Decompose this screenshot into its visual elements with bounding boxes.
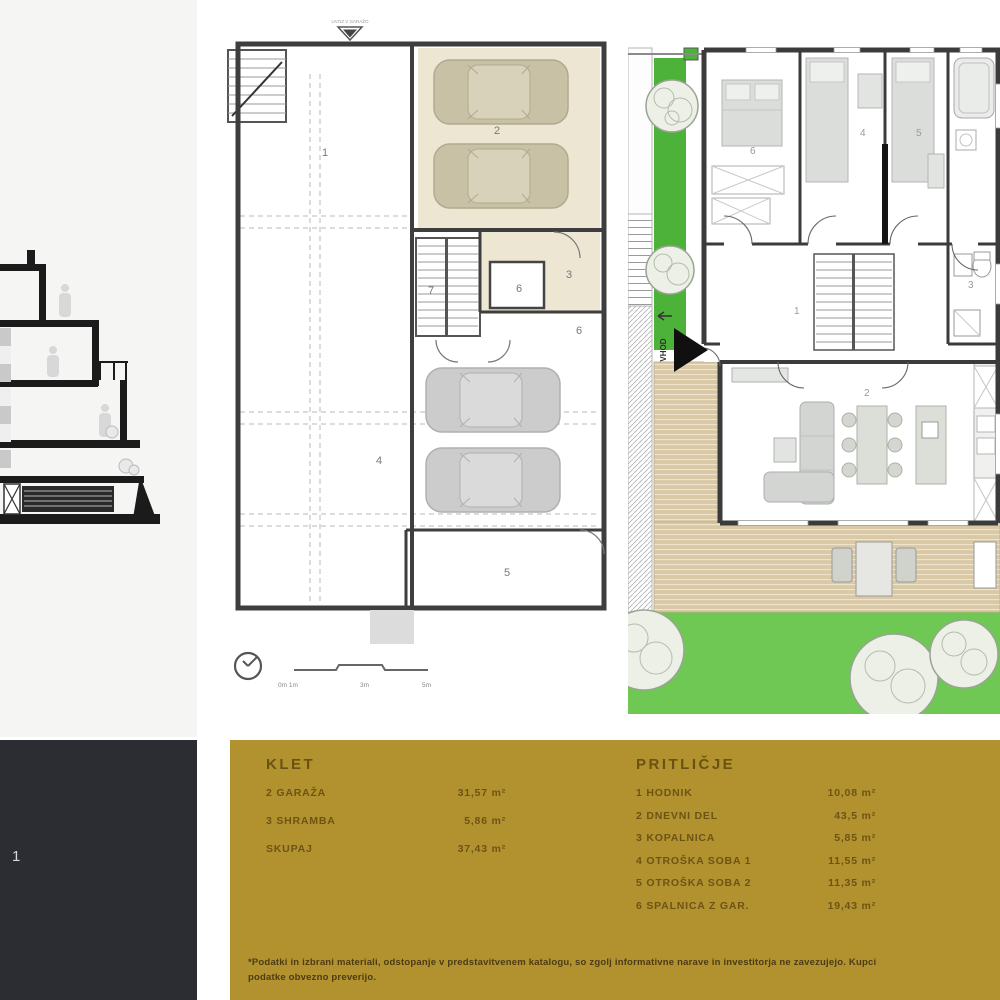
scale-label-3: 3m xyxy=(360,682,369,689)
compass-icon xyxy=(235,653,261,679)
row-value: 5,85 m² xyxy=(786,832,876,844)
row-label: 2 DNEVNI DEL xyxy=(636,810,786,822)
room-label-kid2: 5 xyxy=(916,128,922,139)
row-value: 37,43 m² xyxy=(416,843,506,855)
room-label-kid1: 4 xyxy=(860,128,866,139)
room-label-ramp: 1 xyxy=(322,147,328,159)
row-label: 5 OTROŠKA SOBA 2 xyxy=(636,877,786,889)
car-parking-2 xyxy=(426,448,560,512)
people-silhouettes xyxy=(47,284,111,437)
driveway-marker-label: UVOZ V GARAŽO xyxy=(331,17,369,24)
table-row: 1 HODNIK 10,08 m² xyxy=(636,787,896,799)
room-label-hallway: 1 xyxy=(794,306,800,317)
gravel-path xyxy=(628,306,652,612)
thick-wall-segment xyxy=(882,144,888,244)
table-row: 4 OTROŠKA SOBA 1 11,55 m² xyxy=(636,855,896,867)
room-label-storage: 3 xyxy=(566,269,572,281)
building-cross-section xyxy=(0,228,160,528)
row-label: SKUPAJ xyxy=(266,843,416,855)
row-value: 43,5 m² xyxy=(786,810,876,822)
table-row: 6 SPALNICA Z GAR. 19,43 m² xyxy=(636,900,896,912)
table-row: 3 KOPALNICA 5,85 m² xyxy=(636,832,896,844)
table-row: 2 GARAŽA 31,57 m² xyxy=(266,787,526,799)
row-value: 19,43 m² xyxy=(786,900,876,912)
pritlicje-table: PRITLIČJE 1 HODNIK 10,08 m² 2 DNEVNI DEL… xyxy=(636,756,896,922)
scale-bar: 0m 1m 3m 5m xyxy=(278,665,431,689)
row-value: 11,35 m² xyxy=(786,877,876,889)
scale-label-0: 0m 1m xyxy=(278,682,298,689)
unit-number: 1 xyxy=(12,848,20,865)
room-label-room5: 5 xyxy=(504,567,510,579)
railing xyxy=(96,362,128,380)
tree-icon xyxy=(646,246,694,294)
tree-icon xyxy=(850,634,938,714)
room-label-master: 6 xyxy=(750,146,756,157)
table-row: 2 DNEVNI DEL 43,5 m² xyxy=(636,810,896,822)
row-label: 3 SHRAMBA xyxy=(266,815,416,827)
scale-label-5: 5m xyxy=(422,682,431,689)
tree-icon xyxy=(930,620,998,688)
pritlicje-title: PRITLIČJE xyxy=(636,756,896,773)
table-row: SKUPAJ 37,43 m² xyxy=(266,843,526,855)
row-label: 2 GARAŽA xyxy=(266,787,416,799)
room-label-stairs: 7 xyxy=(428,285,434,297)
car-garage-1 xyxy=(434,60,568,124)
room-label-living: 2 xyxy=(864,388,870,399)
car-parking-1 xyxy=(426,368,560,432)
klet-table: KLET 2 GARAŽA 31,57 m² 3 SHRAMBA 5,86 m²… xyxy=(266,756,526,871)
room-label-room6b: 6 xyxy=(576,325,582,337)
brochure-page: 1 xyxy=(0,0,1000,1000)
room-label-parking: 4 xyxy=(376,455,382,467)
row-value: 5,86 m² xyxy=(416,815,506,827)
deck-step xyxy=(974,542,996,588)
stairwell xyxy=(416,238,480,336)
room-label-garage: 2 xyxy=(494,125,500,137)
row-label: 1 HODNIK xyxy=(636,787,786,799)
entrance-label: VHOD xyxy=(659,338,668,361)
klet-title: KLET xyxy=(266,756,526,773)
row-label: 6 SPALNICA Z GAR. xyxy=(636,900,786,912)
car-garage-2 xyxy=(434,144,568,208)
legend-panel: KLET 2 GARAŽA 31,57 m² 3 SHRAMBA 5,86 m²… xyxy=(230,740,1000,1000)
table-row: 3 SHRAMBA 5,86 m² xyxy=(266,815,526,827)
row-value: 11,55 m² xyxy=(786,855,876,867)
table-row: 5 OTROŠKA SOBA 2 11,35 m² xyxy=(636,877,896,889)
interior-stairs xyxy=(814,254,894,350)
row-value: 31,57 m² xyxy=(416,787,506,799)
tree-icon xyxy=(646,80,698,132)
side-path xyxy=(628,48,652,214)
row-label: 3 KOPALNICA xyxy=(636,832,786,844)
master-bed xyxy=(722,80,782,146)
unit-number-panel: 1 xyxy=(0,740,197,1000)
room-label-bathroom: 3 xyxy=(968,280,974,291)
garage-doors xyxy=(4,484,114,514)
legend-footnote: *Podatki in izbrani materiali, odstopanj… xyxy=(248,956,990,985)
driveway-marker: UVOZ V GARAŽO xyxy=(331,17,369,40)
section-structure xyxy=(0,250,160,524)
footnote-line-1: *Podatki in izbrani materiali, odstopanj… xyxy=(248,957,876,968)
basement-floor-plan: 1 2 3 4 5 6 6 7 UVOZ V GARAŽO 0m 1m 3m 5… xyxy=(222,14,620,700)
entry-stub xyxy=(370,610,414,644)
deck-terrace xyxy=(654,522,1000,612)
left-panel xyxy=(0,0,197,737)
row-value: 10,08 m² xyxy=(786,787,876,799)
footnote-line-2: podatke obvezno preverijo. xyxy=(248,972,376,983)
room-label-room6a: 6 xyxy=(516,283,522,295)
ground-floor-plan: VHOD xyxy=(628,14,1000,714)
row-label: 4 OTROŠKA SOBA 1 xyxy=(636,855,786,867)
